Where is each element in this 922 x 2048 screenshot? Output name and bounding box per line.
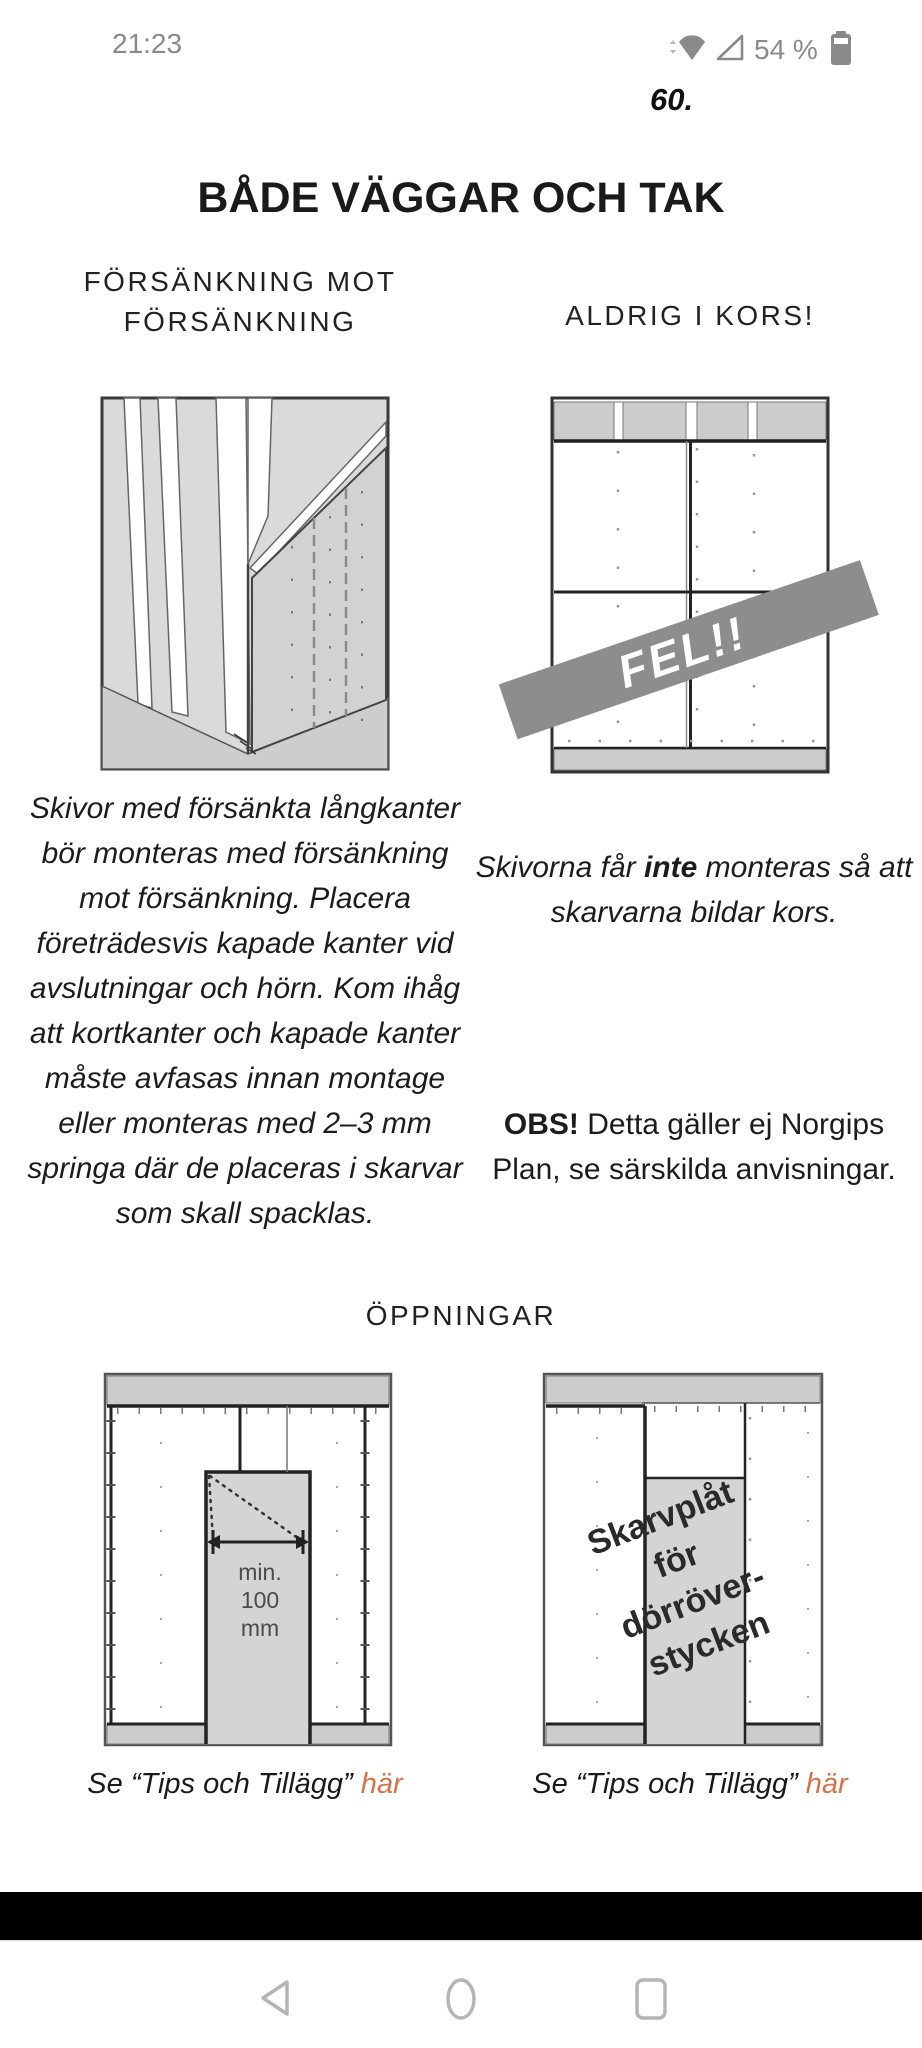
caption-right-text: Se “Tips och Tillägg” — [532, 1768, 805, 1800]
page-number: 60. — [650, 82, 693, 118]
section-heading-never-cross: ALDRIG I KORS! — [478, 296, 902, 336]
phone-screen: 21:23 54 % 60. BÅDE VÄGGAR OCH TAK FÖRSÄ… — [0, 0, 922, 2048]
caption-right: Se “Tips och Tillägg” här — [470, 1768, 910, 1801]
paragraph-never-cross: Skivorna får inte monteras så att skarva… — [468, 845, 920, 935]
battery-icon — [827, 28, 855, 73]
wifi-icon — [668, 33, 706, 68]
note-obs: OBS! Detta gäller ej Norgips Plan, se sä… — [468, 1102, 920, 1192]
nav-home-button[interactable] — [444, 1977, 478, 2026]
gesture-black-bar — [0, 1892, 922, 1940]
figure-opening-min100: min. 100 mm — [103, 1372, 393, 1747]
dim-label-100: 100 — [241, 1587, 279, 1613]
paragraph-recessed: Skivor med försänkta långkanter bör mont… — [14, 786, 476, 1236]
section-heading-recessed: FÖRSÄNKNING MOT FÖRSÄNKNING — [28, 262, 452, 342]
status-bar-icons: 54 % — [668, 30, 855, 70]
dim-label-mm: mm — [241, 1615, 279, 1641]
paragraph-never-cross-bold: inte — [644, 851, 697, 884]
figure-never-cross: FEL!! — [550, 396, 830, 774]
dim-label-min: min. — [238, 1559, 281, 1585]
page-title: BÅDE VÄGGAR OCH TAK — [0, 174, 922, 223]
signal-icon — [715, 33, 745, 68]
caption-right-link[interactable]: här — [806, 1768, 848, 1800]
android-nav-bar — [0, 1940, 922, 2048]
figure-opening-skarvplat: Skarvplåt för dörröver- stycken — [542, 1372, 824, 1747]
status-time: 21:23 — [112, 28, 182, 60]
paragraph-never-cross-prefix: Skivorna får — [476, 851, 644, 884]
caption-left: Se “Tips och Tillägg” här — [22, 1768, 468, 1801]
figure-recessed-joint — [100, 396, 390, 771]
note-obs-bold: OBS! — [504, 1108, 579, 1141]
caption-left-text: Se “Tips och Tillägg” — [87, 1768, 360, 1800]
nav-back-button[interactable] — [256, 1977, 294, 2024]
section-heading-openings: ÖPPNINGAR — [0, 1296, 922, 1336]
battery-percent-label: 54 % — [754, 34, 818, 66]
caption-left-link[interactable]: här — [361, 1768, 403, 1800]
nav-recents-button[interactable] — [632, 1977, 670, 2026]
